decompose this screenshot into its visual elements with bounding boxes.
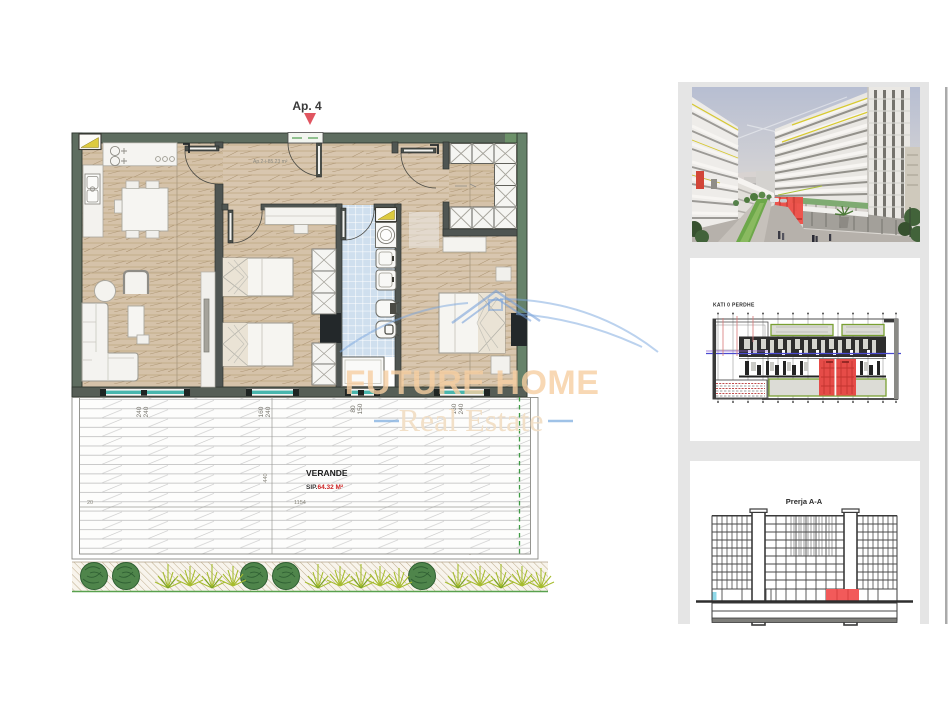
svg-text:Ap. 4: Ap. 4 <box>292 99 322 113</box>
svg-text:Prerja A-A: Prerja A-A <box>786 497 823 506</box>
svg-text:440: 440 <box>263 473 269 482</box>
svg-text:160: 160 <box>258 406 265 417</box>
svg-text:SIP.64.32 M²: SIP.64.32 M² <box>306 484 344 491</box>
svg-text:20: 20 <box>87 500 93 506</box>
svg-text:1154: 1154 <box>294 500 306 506</box>
svg-text:80: 80 <box>350 405 357 413</box>
svg-text:KATI 0 PERDHE: KATI 0 PERDHE <box>713 303 755 309</box>
svg-text:240: 240 <box>265 406 272 417</box>
svg-text:FUTURE HOME: FUTURE HOME <box>345 364 600 402</box>
svg-text:240: 240 <box>143 406 150 417</box>
svg-text:240: 240 <box>136 406 143 417</box>
svg-text:Ap.2-i-85.23 m²: Ap.2-i-85.23 m² <box>253 159 288 165</box>
svg-text:Real Estate: Real Estate <box>399 402 544 438</box>
svg-text:150: 150 <box>357 403 364 414</box>
svg-text:VERANDE: VERANDE <box>306 468 348 478</box>
